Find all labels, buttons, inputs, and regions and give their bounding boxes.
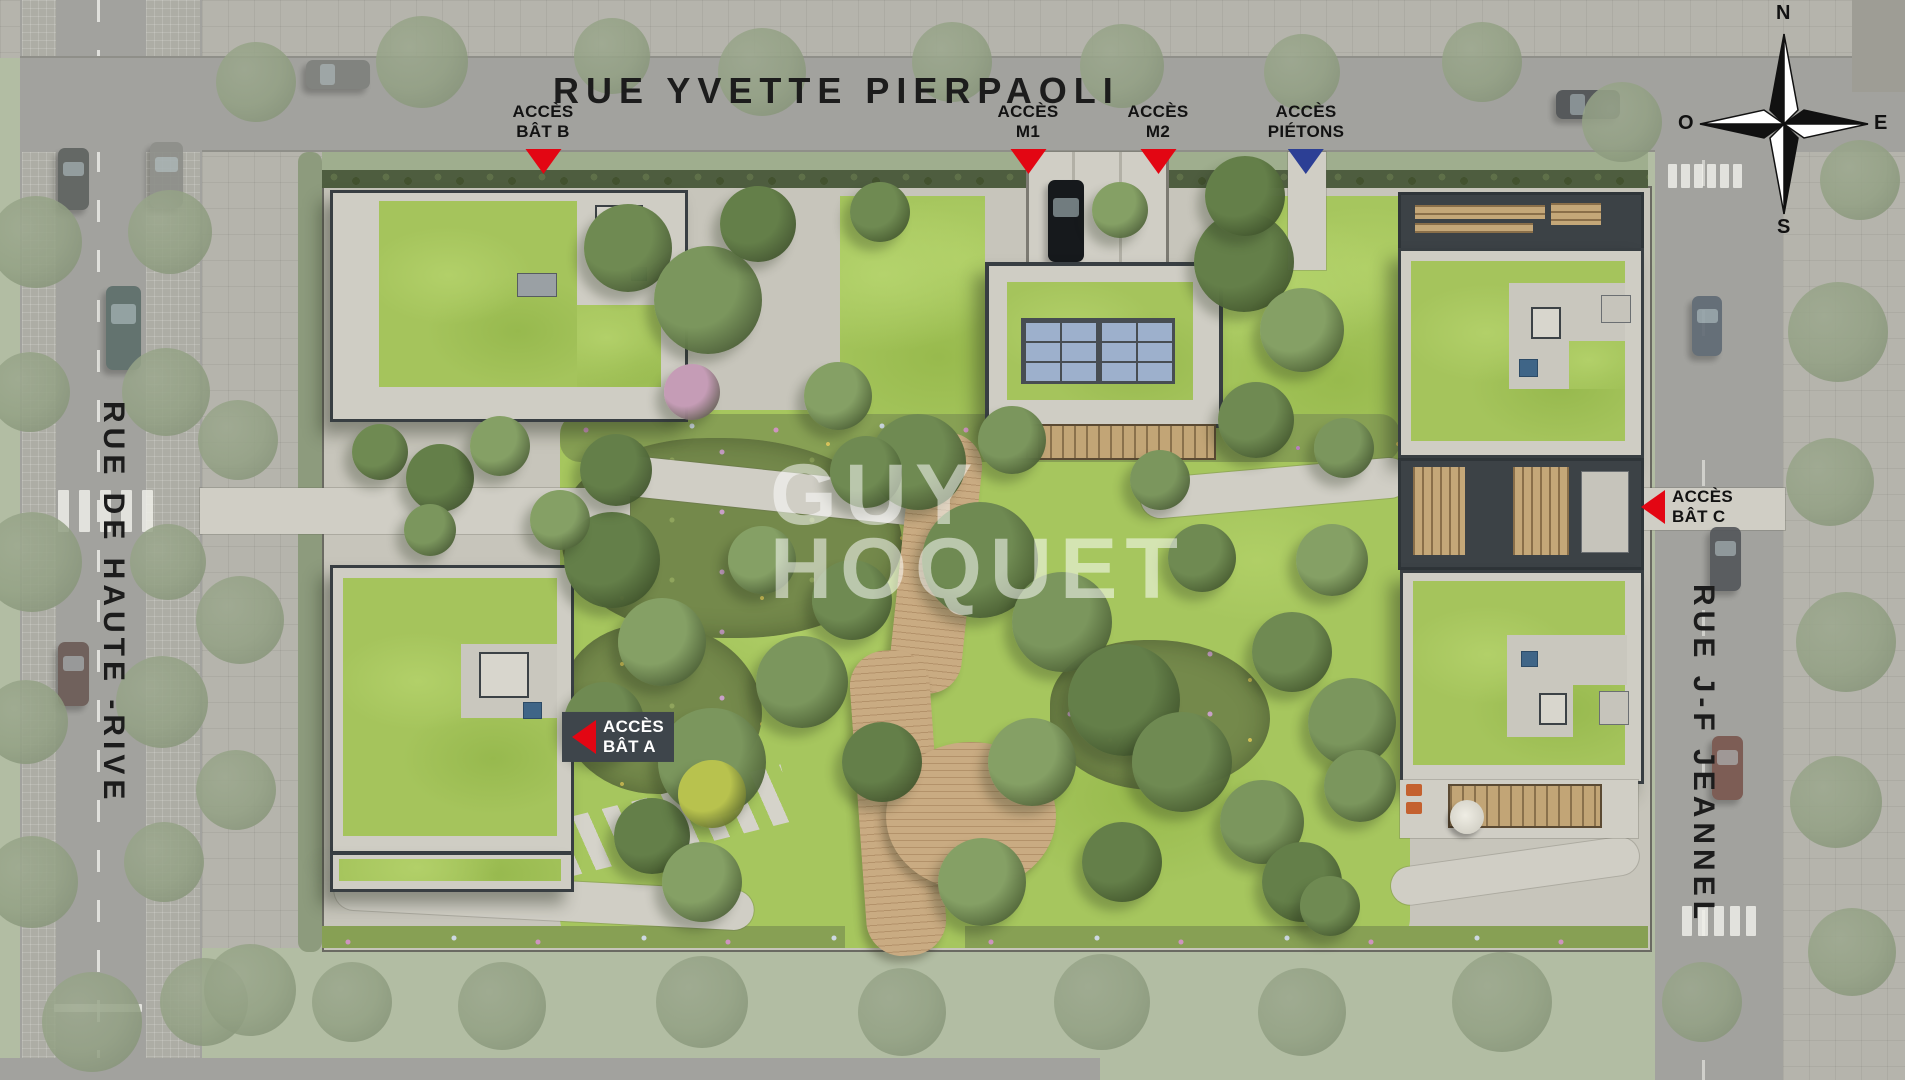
- tree: [1082, 822, 1162, 902]
- tree: [1314, 418, 1374, 478]
- roof-equipment: [1601, 295, 1631, 323]
- tree: [1296, 524, 1368, 596]
- building-bat-a-annex: [330, 852, 574, 892]
- compass-west-label: O: [1678, 112, 1694, 135]
- tree: [1218, 382, 1294, 458]
- access-arrow-down-icon: [1288, 149, 1324, 174]
- acces-m2-label: ACCÈSM2: [1127, 102, 1188, 142]
- tree: [1054, 954, 1150, 1050]
- tree: [618, 598, 706, 686]
- solar-panel-array: [1021, 318, 1099, 384]
- hedge-south: [322, 926, 845, 948]
- marker-label-line: ACCÈS: [1268, 102, 1344, 122]
- parasol: [1450, 800, 1484, 834]
- terrace-se: [1400, 780, 1638, 838]
- marker-label-line: ACCÈS: [603, 717, 664, 737]
- marker-label-line: M2: [1127, 122, 1188, 142]
- solar-panel-array: [1097, 318, 1175, 384]
- marker-label-line: PIÉTONS: [1268, 122, 1344, 142]
- tree: [1260, 288, 1344, 372]
- tree: [1252, 612, 1332, 692]
- tree: [1442, 22, 1522, 102]
- street-label-rue-jf-jeannel: RUE J-F JEANNEL: [1686, 584, 1720, 864]
- parked-car: [106, 286, 141, 370]
- acces-bat-a-label: ACCÈSBÂT A: [603, 717, 664, 757]
- parked-car: [1692, 296, 1722, 356]
- crosswalk-stripe: [142, 490, 153, 532]
- tree: [842, 722, 922, 802]
- terrace-paving: [1581, 471, 1629, 553]
- tree: [1264, 34, 1340, 110]
- marker-label-line: ACCÈS: [1127, 102, 1188, 122]
- tree: [656, 956, 748, 1048]
- tree: [858, 968, 946, 1056]
- roof-terrace-ne: [1398, 192, 1644, 252]
- compass-rose: [1692, 12, 1882, 224]
- tree: [530, 490, 590, 550]
- tree: [128, 190, 212, 274]
- car-windshield: [63, 162, 85, 176]
- wood-slat-deck: [1413, 467, 1465, 555]
- acces-bat-a: ACCÈSBÂT A: [562, 712, 674, 762]
- tree: [1796, 592, 1896, 692]
- building-solar: [985, 262, 1223, 428]
- tree: [850, 182, 910, 242]
- acces-pietons-nord-label: ACCÈSPIÉTONS: [1268, 102, 1344, 142]
- tree: [1258, 968, 1346, 1056]
- acces-m1: ACCÈSM1: [997, 102, 1058, 174]
- tree: [1808, 908, 1896, 996]
- roof-courtyard: [1571, 635, 1627, 685]
- roof-equipment: [1599, 691, 1629, 725]
- terrace-block-east: [1398, 458, 1644, 570]
- lounge-chair: [1406, 784, 1422, 796]
- compass-south-label: S: [1777, 216, 1790, 239]
- tree: [1790, 756, 1882, 848]
- tree: [756, 636, 848, 728]
- tree: [1582, 82, 1662, 162]
- green-roof: [339, 859, 561, 881]
- tree: [196, 576, 284, 664]
- road-south: [0, 1058, 1100, 1080]
- marker-label-line: M1: [997, 122, 1058, 142]
- tree: [664, 364, 720, 420]
- roof-access-hut: [1531, 307, 1561, 339]
- roof-access-hut: [479, 652, 529, 698]
- tree: [404, 504, 456, 556]
- tree: [124, 822, 204, 902]
- crosswalk-stripe: [79, 490, 90, 532]
- tree: [204, 944, 296, 1036]
- parked-car: [58, 148, 89, 210]
- access-arrow-down-icon: [525, 149, 561, 174]
- parked-car: [306, 60, 370, 89]
- tree: [720, 186, 796, 262]
- tree: [130, 524, 206, 600]
- hedge-south: [965, 926, 1648, 948]
- tree: [406, 444, 474, 512]
- car-windshield: [1053, 198, 1078, 217]
- wood-bench: [1415, 205, 1545, 219]
- tree: [804, 362, 872, 430]
- tree: [458, 962, 546, 1050]
- crosswalk-stripe: [1668, 164, 1677, 188]
- tree: [216, 42, 296, 122]
- tree: [1786, 438, 1874, 526]
- marker-label-line: BÂT B: [512, 122, 573, 142]
- crosswalk-stripe: [1746, 906, 1756, 936]
- car-entering: [1048, 180, 1084, 262]
- tree: [1662, 962, 1742, 1042]
- tree: [1788, 282, 1888, 382]
- acces-m1-label: ACCÈSM1: [997, 102, 1058, 142]
- tree: [988, 718, 1076, 806]
- tree: [654, 246, 762, 354]
- hedge-north: [1326, 170, 1648, 188]
- skylight: [1519, 359, 1538, 377]
- roof-equipment: [517, 273, 557, 297]
- building-se: [1400, 570, 1644, 784]
- marker-label-line: ACCÈS: [997, 102, 1058, 122]
- green-roof: [577, 305, 661, 387]
- access-arrow-left-icon: [572, 720, 596, 754]
- acces-bat-c-label: ACCÈSBÂT C: [1672, 487, 1733, 527]
- marker-label-line: BÂT C: [1672, 507, 1733, 527]
- crosswalk-stripe: [1730, 906, 1740, 936]
- street-label-rue-de-haute-rive: RUE DE HAUTE -RIVE: [96, 401, 130, 741]
- watermark-line2: HOQUET: [770, 532, 1186, 606]
- skylight: [1521, 651, 1538, 667]
- tree: [312, 962, 392, 1042]
- tree: [1092, 182, 1148, 238]
- tree: [122, 348, 210, 436]
- access-arrow-down-icon: [1010, 149, 1046, 174]
- tree: [938, 838, 1026, 926]
- tree: [376, 16, 468, 108]
- green-roof: [1569, 341, 1625, 389]
- tree: [470, 416, 530, 476]
- lounge-chair: [1406, 802, 1422, 814]
- tree: [42, 972, 142, 1072]
- access-arrow-left-icon: [1641, 490, 1665, 524]
- wood-table: [1551, 203, 1601, 225]
- compass-north-label: N: [1776, 2, 1790, 25]
- building-bat-a: [330, 565, 574, 854]
- tree: [580, 434, 652, 506]
- tree: [1300, 876, 1360, 936]
- roof-access-hut: [1539, 693, 1567, 725]
- car-windshield: [111, 304, 136, 323]
- acces-bat-b-label: ACCÈSBÂT B: [512, 102, 573, 142]
- site-plan-canvas: ACCÈSBÂT BACCÈSM1ACCÈSM2ACCÈSPIÉTONSACCÈ…: [0, 0, 1905, 1080]
- tree: [352, 424, 408, 480]
- tree: [1452, 952, 1552, 1052]
- car-windshield: [63, 656, 85, 671]
- tree: [1132, 712, 1232, 812]
- marker-label-line: ACCÈS: [512, 102, 573, 122]
- access-arrow-down-icon: [1140, 149, 1176, 174]
- marker-label-line: BÂT A: [603, 737, 664, 757]
- tree: [662, 842, 742, 922]
- tree: [198, 400, 278, 480]
- car-windshield: [1715, 541, 1737, 556]
- acces-bat-b: ACCÈSBÂT B: [512, 102, 573, 174]
- marker-label-line: ACCÈS: [1672, 487, 1733, 507]
- skylight: [523, 702, 542, 719]
- building-ne: [1398, 248, 1644, 458]
- hedge-north: [322, 170, 1028, 188]
- wood-bench: [1415, 223, 1533, 233]
- planting-strip-west: [298, 152, 322, 952]
- parked-car: [58, 642, 89, 706]
- guy-hoquet-watermark: GUY HOQUET: [770, 458, 1186, 606]
- wood-slat-deck: [1513, 467, 1569, 555]
- tree: [678, 760, 746, 828]
- compass-east-label: E: [1874, 112, 1887, 135]
- acces-pietons-nord: ACCÈSPIÉTONS: [1268, 102, 1344, 174]
- car-windshield: [155, 157, 178, 172]
- acces-m2: ACCÈSM2: [1127, 102, 1188, 174]
- crosswalk-stripe: [1681, 164, 1690, 188]
- acces-bat-c: ACCÈSBÂT C: [1641, 487, 1733, 527]
- car-windshield: [1697, 309, 1718, 323]
- car-windshield: [320, 64, 335, 84]
- parked-car: [1710, 527, 1741, 591]
- tree: [196, 750, 276, 830]
- tree: [1324, 750, 1396, 822]
